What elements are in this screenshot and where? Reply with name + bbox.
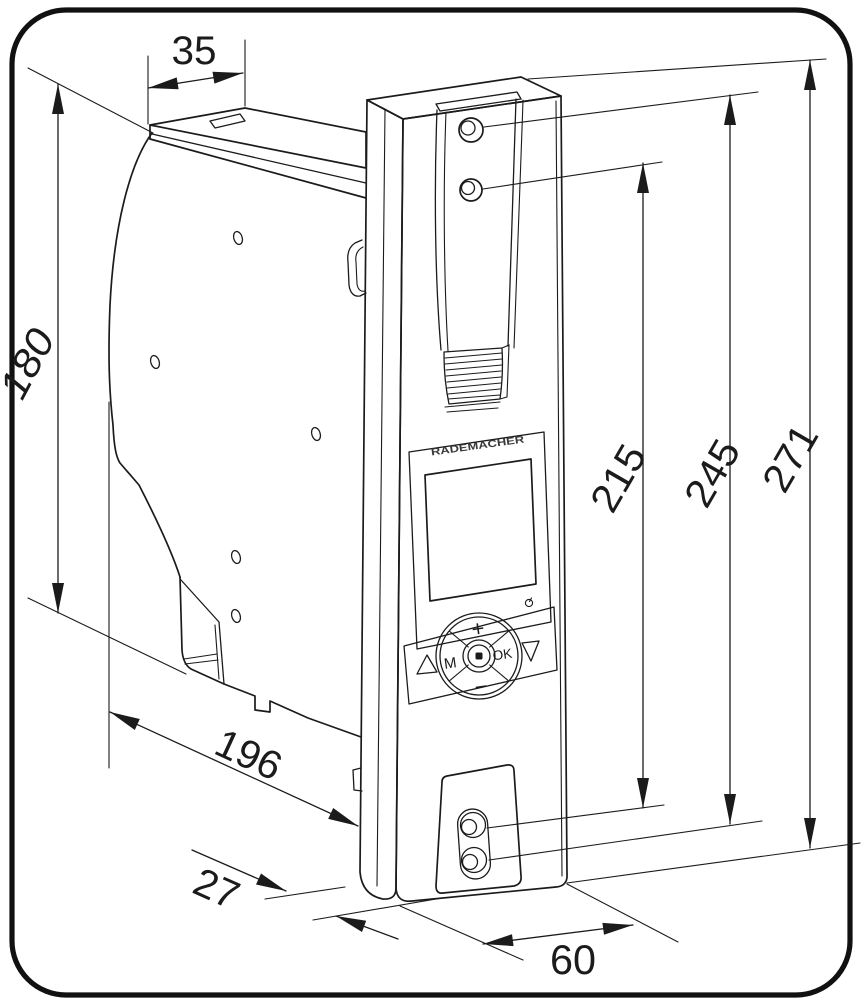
ok-button: OK (492, 646, 513, 664)
panel-front-face (396, 96, 567, 901)
drum-silhouette (109, 133, 180, 577)
channel-left-line (435, 110, 441, 350)
screw-hole-icon (232, 230, 244, 245)
panel-screw-holes (459, 118, 483, 201)
cutout-inner-edge (215, 625, 219, 679)
screw-hole-icon (149, 354, 161, 369)
brand-label: RADEMACHER (430, 434, 526, 458)
mounting-clip-inner (356, 247, 365, 291)
channel-left-inner (444, 112, 448, 351)
dim-196-label: 196 (208, 721, 288, 789)
display-screen (425, 459, 536, 601)
belt-roller-hatch (445, 353, 502, 399)
dimension-180: 180 (0, 68, 186, 674)
front-panel: RADEMACHER + − M OK (348, 77, 567, 901)
keypad: + − M OK (404, 598, 557, 704)
rail-slot (210, 114, 245, 128)
drawing-page: RADEMACHER + − M OK (0, 0, 862, 1007)
dimension-27: 27 (187, 850, 442, 939)
dim-60-label: 60 (550, 936, 596, 983)
dim-245-label: 245 (676, 432, 749, 515)
screw-hole-icon (230, 549, 242, 564)
belt-channel (435, 99, 523, 412)
screw-hole-lower-inner (462, 182, 475, 195)
dim-27-label: 27 (187, 860, 246, 918)
belt-winder-dimensional-drawing: RADEMACHER + − M OK (0, 0, 862, 1007)
winder-body (109, 108, 366, 737)
plus-button: + (470, 615, 486, 642)
triangle-up-icon (417, 655, 437, 674)
mounting-clip (348, 240, 366, 296)
dim-271-label: 271 (754, 417, 827, 500)
dimension-196: 196 (109, 402, 358, 826)
dim-35-label: 35 (172, 29, 217, 73)
menu-button: M (443, 654, 458, 673)
dim-215-label: 215 (582, 437, 655, 520)
triangle-down-icon (522, 641, 539, 661)
screw-hole-icon (310, 426, 322, 441)
cutout-left-edge (180, 577, 224, 684)
connector-lower-inner (463, 855, 478, 870)
panel-top-face (367, 77, 561, 119)
rail-top-face (150, 108, 366, 168)
cutout-floor-lines (184, 654, 218, 664)
stop-button-square-icon (476, 653, 483, 660)
connector-upper-inner (462, 820, 477, 835)
minus-button: − (473, 673, 489, 700)
screw-hole-upper-inner (461, 121, 475, 135)
screw-hole-icon (230, 608, 242, 623)
connector-plate-outline (436, 765, 521, 893)
connector-plate (436, 765, 521, 893)
rail-lip-bottom (150, 139, 366, 198)
cutout-corner-edge (181, 580, 224, 684)
panel-side-accent (377, 109, 385, 886)
channel-right-line (508, 99, 516, 346)
rail-lip-accent (152, 134, 366, 183)
power-indicator-icon (525, 598, 532, 607)
